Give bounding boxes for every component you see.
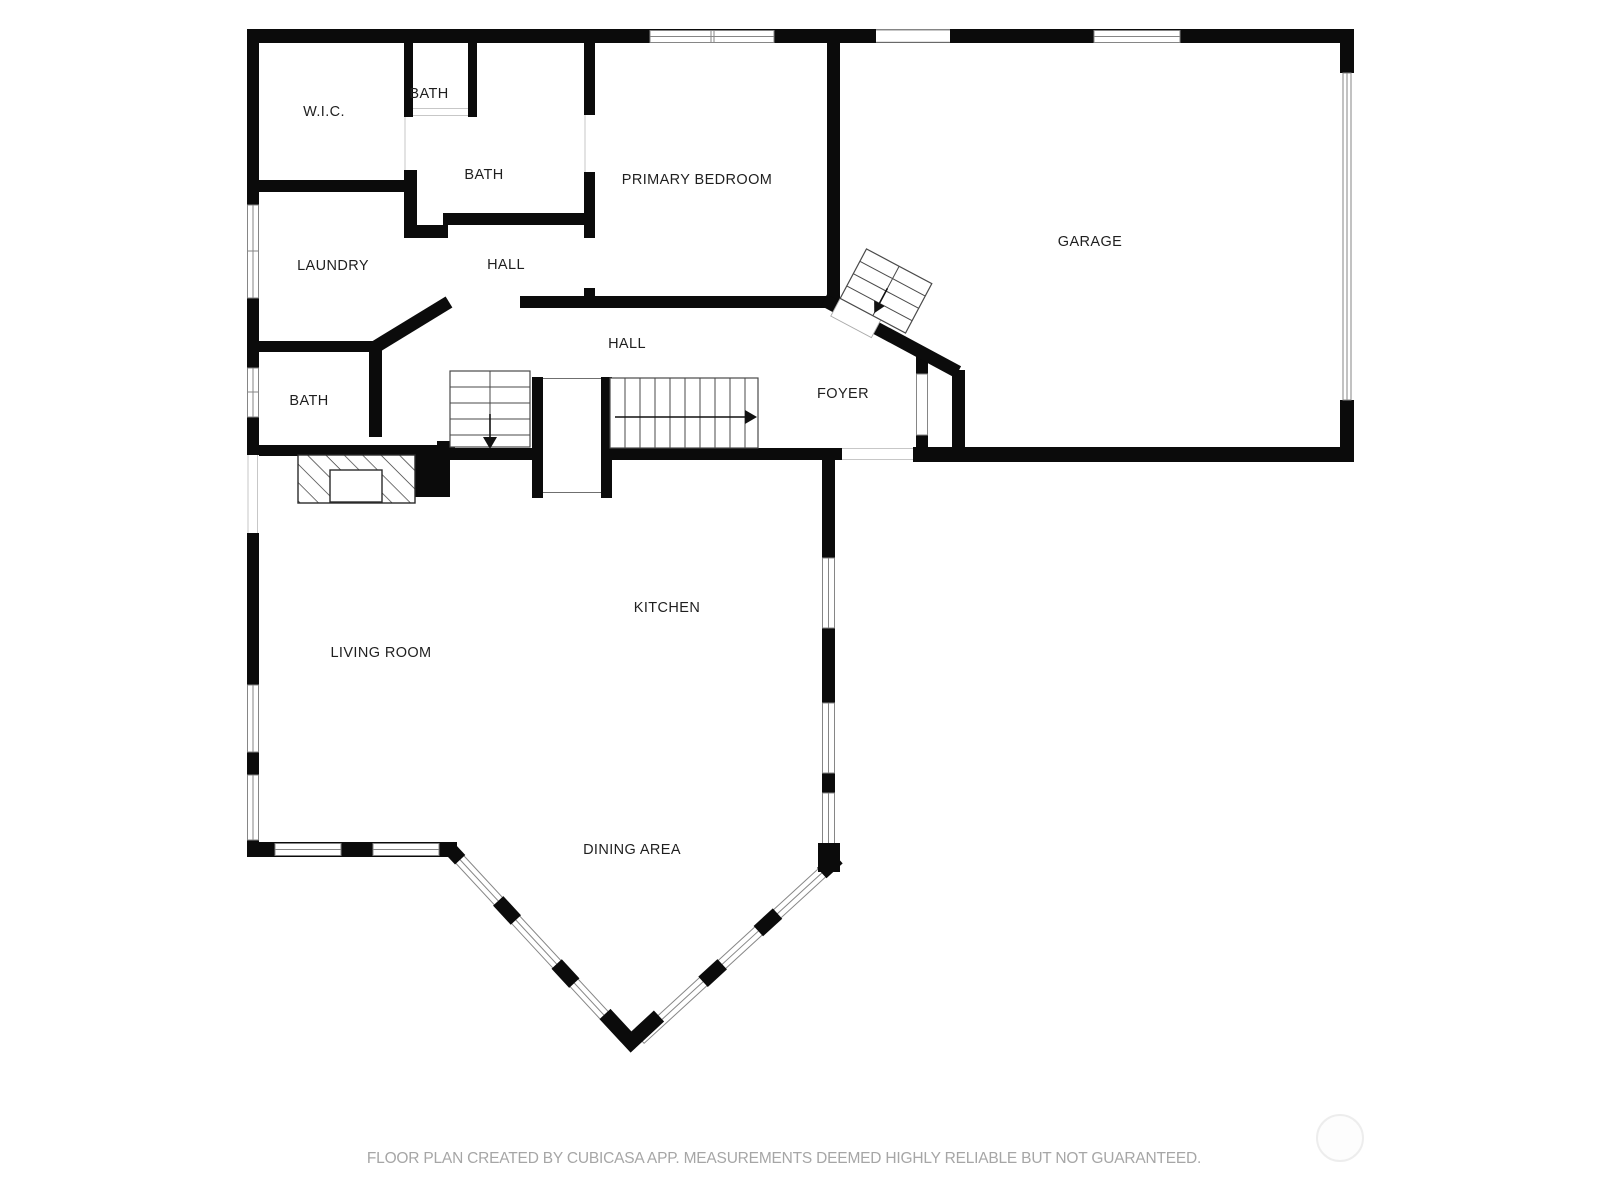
walls (247, 29, 1354, 857)
room-label-primary-bedroom: PRIMARY BEDROOM (622, 172, 773, 188)
fireplace (298, 455, 415, 503)
footer-disclaimer: FLOOR PLAN CREATED BY CUBICASA APP. MEAS… (367, 1150, 1201, 1167)
floor-plan-page: W.I.C. BATH BATH PRIMARY BEDROOM GARAGE … (0, 0, 1600, 1200)
window (823, 703, 835, 773)
window (248, 368, 259, 417)
floor-plan-canvas: W.I.C. BATH BATH PRIMARY BEDROOM GARAGE … (0, 0, 1600, 1200)
windows (247, 30, 1351, 856)
room-label-hall-lower: HALL (608, 336, 646, 352)
room-label-bath-main: BATH (464, 167, 503, 183)
room-label-laundry: LAUNDRY (297, 258, 369, 274)
room-label-bath-top: BATH (409, 86, 448, 102)
staircase-down (450, 371, 530, 449)
staircase-up (610, 378, 758, 448)
window (248, 205, 259, 298)
room-label-foyer: FOYER (817, 386, 869, 402)
room-label-living-room: LIVING ROOM (330, 645, 431, 661)
bay-vertex-wall (605, 1014, 659, 1042)
room-label-dining-area: DINING AREA (583, 842, 681, 858)
window (248, 685, 259, 752)
window (1343, 73, 1351, 400)
room-label-bath-lower: BATH (289, 393, 328, 409)
room-label-hall-upper: HALL (487, 257, 525, 273)
window (650, 31, 774, 43)
window (248, 775, 259, 840)
room-label-garage: GARAGE (1058, 234, 1122, 250)
wall-opening (876, 30, 950, 43)
bay-window-right (636, 853, 843, 1044)
window (373, 844, 439, 856)
room-label-kitchen: KITCHEN (634, 600, 700, 616)
window (917, 374, 928, 435)
window (1094, 31, 1180, 43)
watermark-circle (1317, 1115, 1363, 1161)
window (823, 793, 835, 845)
bay-window-left (443, 842, 631, 1043)
window (275, 844, 341, 856)
room-label-wic: W.I.C. (303, 104, 345, 120)
bay-corner-wall (818, 843, 840, 872)
window (823, 558, 835, 628)
wall-opening (247, 455, 259, 533)
